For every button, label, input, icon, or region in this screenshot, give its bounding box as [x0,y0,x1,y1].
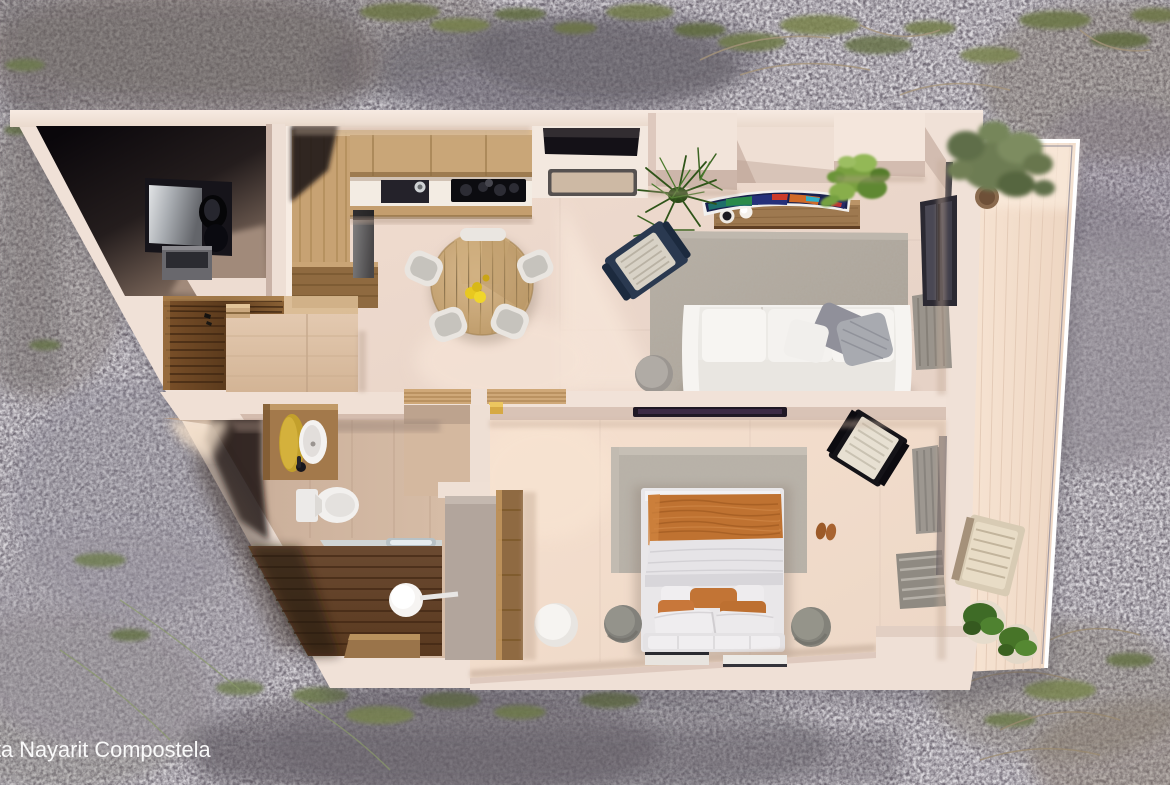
svg-text:ta Nayarit Compostela: ta Nayarit Compostela [0,737,212,762]
